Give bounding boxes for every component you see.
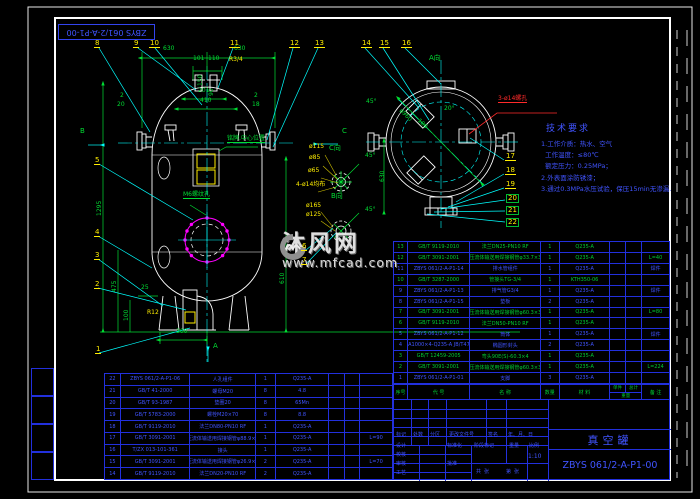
annotation-label: R12 (147, 310, 159, 316)
annotation-label: 重量 (509, 444, 519, 449)
balloon-number: 7 (301, 257, 307, 265)
annotation-label: 4-ø14均布 (296, 182, 325, 188)
balloon-number: 21 (506, 206, 519, 215)
balloon-number: 2 (94, 281, 100, 289)
balloon-number: 18 (505, 167, 516, 175)
annotation-label: 校核 (396, 453, 406, 458)
annotation-label: A向 (429, 55, 441, 62)
annotation-label: ø125 (306, 212, 321, 218)
balloon-number: 6 (301, 243, 307, 251)
annotation-label: ø65 (308, 168, 319, 174)
annotation-label: 45° (365, 207, 376, 213)
balloon-number: 10 (149, 40, 160, 48)
annotation-label: 比例 (529, 444, 539, 449)
annotation-label: 共 张 (476, 470, 489, 475)
balloon-number: 13 (314, 40, 325, 48)
annotation-label: 610 (280, 273, 286, 284)
annotation-label: 标记 (396, 433, 406, 438)
annotation-label: 工艺 (396, 471, 406, 476)
annotation-label: C向 (329, 145, 341, 152)
annotation-label: 410 (200, 98, 211, 104)
annotation-label: 45° (365, 153, 376, 159)
balloon-number: 4 (94, 229, 100, 237)
annotation-label: 1:10 (528, 454, 541, 460)
annotation-label: 3-ø14螺孔 (498, 96, 527, 103)
annotation-label: 18 (252, 102, 260, 108)
annotation-label: C (342, 128, 347, 135)
balloon-number: 8 (94, 40, 100, 48)
annotation-label: 20° (444, 106, 455, 112)
annotation-label: M6螺纹孔 (183, 192, 210, 199)
annotation-label: 铭牌,中心位置 (227, 136, 265, 143)
annotation-label: 110 (208, 56, 219, 62)
annotation-label: ø85 (309, 155, 320, 161)
balloon-number: 20 (506, 194, 519, 203)
annotation-label: 设计 (396, 444, 406, 449)
annotation-label: 180 (416, 118, 428, 130)
balloon-number: 16 (401, 40, 412, 48)
annotation-label: 标准化 (447, 444, 462, 449)
balloon-number: 9 (133, 40, 139, 48)
annotation-label: 630 (380, 171, 386, 182)
annotation-label: 101 (193, 56, 204, 62)
annotation-label: 审核 (396, 462, 406, 467)
annotation-label: 100 (124, 310, 130, 321)
balloon-number: 12 (289, 40, 300, 48)
annotation-label: 分区 (430, 433, 440, 438)
annotation-label: B向 (331, 193, 343, 200)
annotation-label: 更改文件号 (449, 433, 474, 438)
annotation-layer: 630630101110R3/4201410150902202181295475… (0, 0, 700, 499)
balloon-number: 5 (94, 157, 100, 165)
annotation-label: 300 (176, 329, 187, 335)
annotation-label: 475 (112, 281, 118, 292)
balloon-number: 17 (505, 153, 516, 161)
balloon-number: 19 (505, 181, 516, 189)
annotation-label: 批准 (447, 462, 457, 467)
annotation-label: 150 (198, 75, 204, 86)
balloon-number: 1 (95, 346, 101, 354)
annotation-label: 630 (163, 46, 174, 52)
annotation-label: ø960 (398, 108, 413, 123)
annotation-label: 阶段标记 (474, 444, 494, 449)
annotation-label: 25 (141, 285, 149, 291)
annotation-label: 2 (120, 93, 124, 99)
annotation-label: 90 (209, 88, 215, 96)
annotation-label: R3/4 (229, 57, 243, 63)
annotation-label: ø165 (306, 203, 321, 209)
annotation-label: 处数 (413, 433, 423, 438)
annotation-label: 20 (117, 102, 125, 108)
annotation-label: A (213, 343, 218, 350)
annotation-label: 签名 (488, 433, 498, 438)
balloon-number: 15 (379, 40, 390, 48)
annotation-label: 45° (366, 99, 377, 105)
annotation-label: 年、月、日 (508, 433, 533, 438)
balloon-number: 3 (94, 252, 100, 260)
annotation-label: 2 (254, 93, 258, 99)
annotation-label: 第 张 (506, 470, 519, 475)
cad-sheet: { "margin": { "drawing_no_flipped": "ZBY… (0, 0, 700, 499)
balloon-number: 14 (361, 40, 372, 48)
balloon-number: 11 (229, 40, 240, 48)
annotation-label: 1295 (97, 201, 103, 216)
balloon-number: 22 (506, 218, 519, 227)
annotation-label: ø115 (309, 144, 324, 150)
annotation-label: B (80, 128, 85, 135)
